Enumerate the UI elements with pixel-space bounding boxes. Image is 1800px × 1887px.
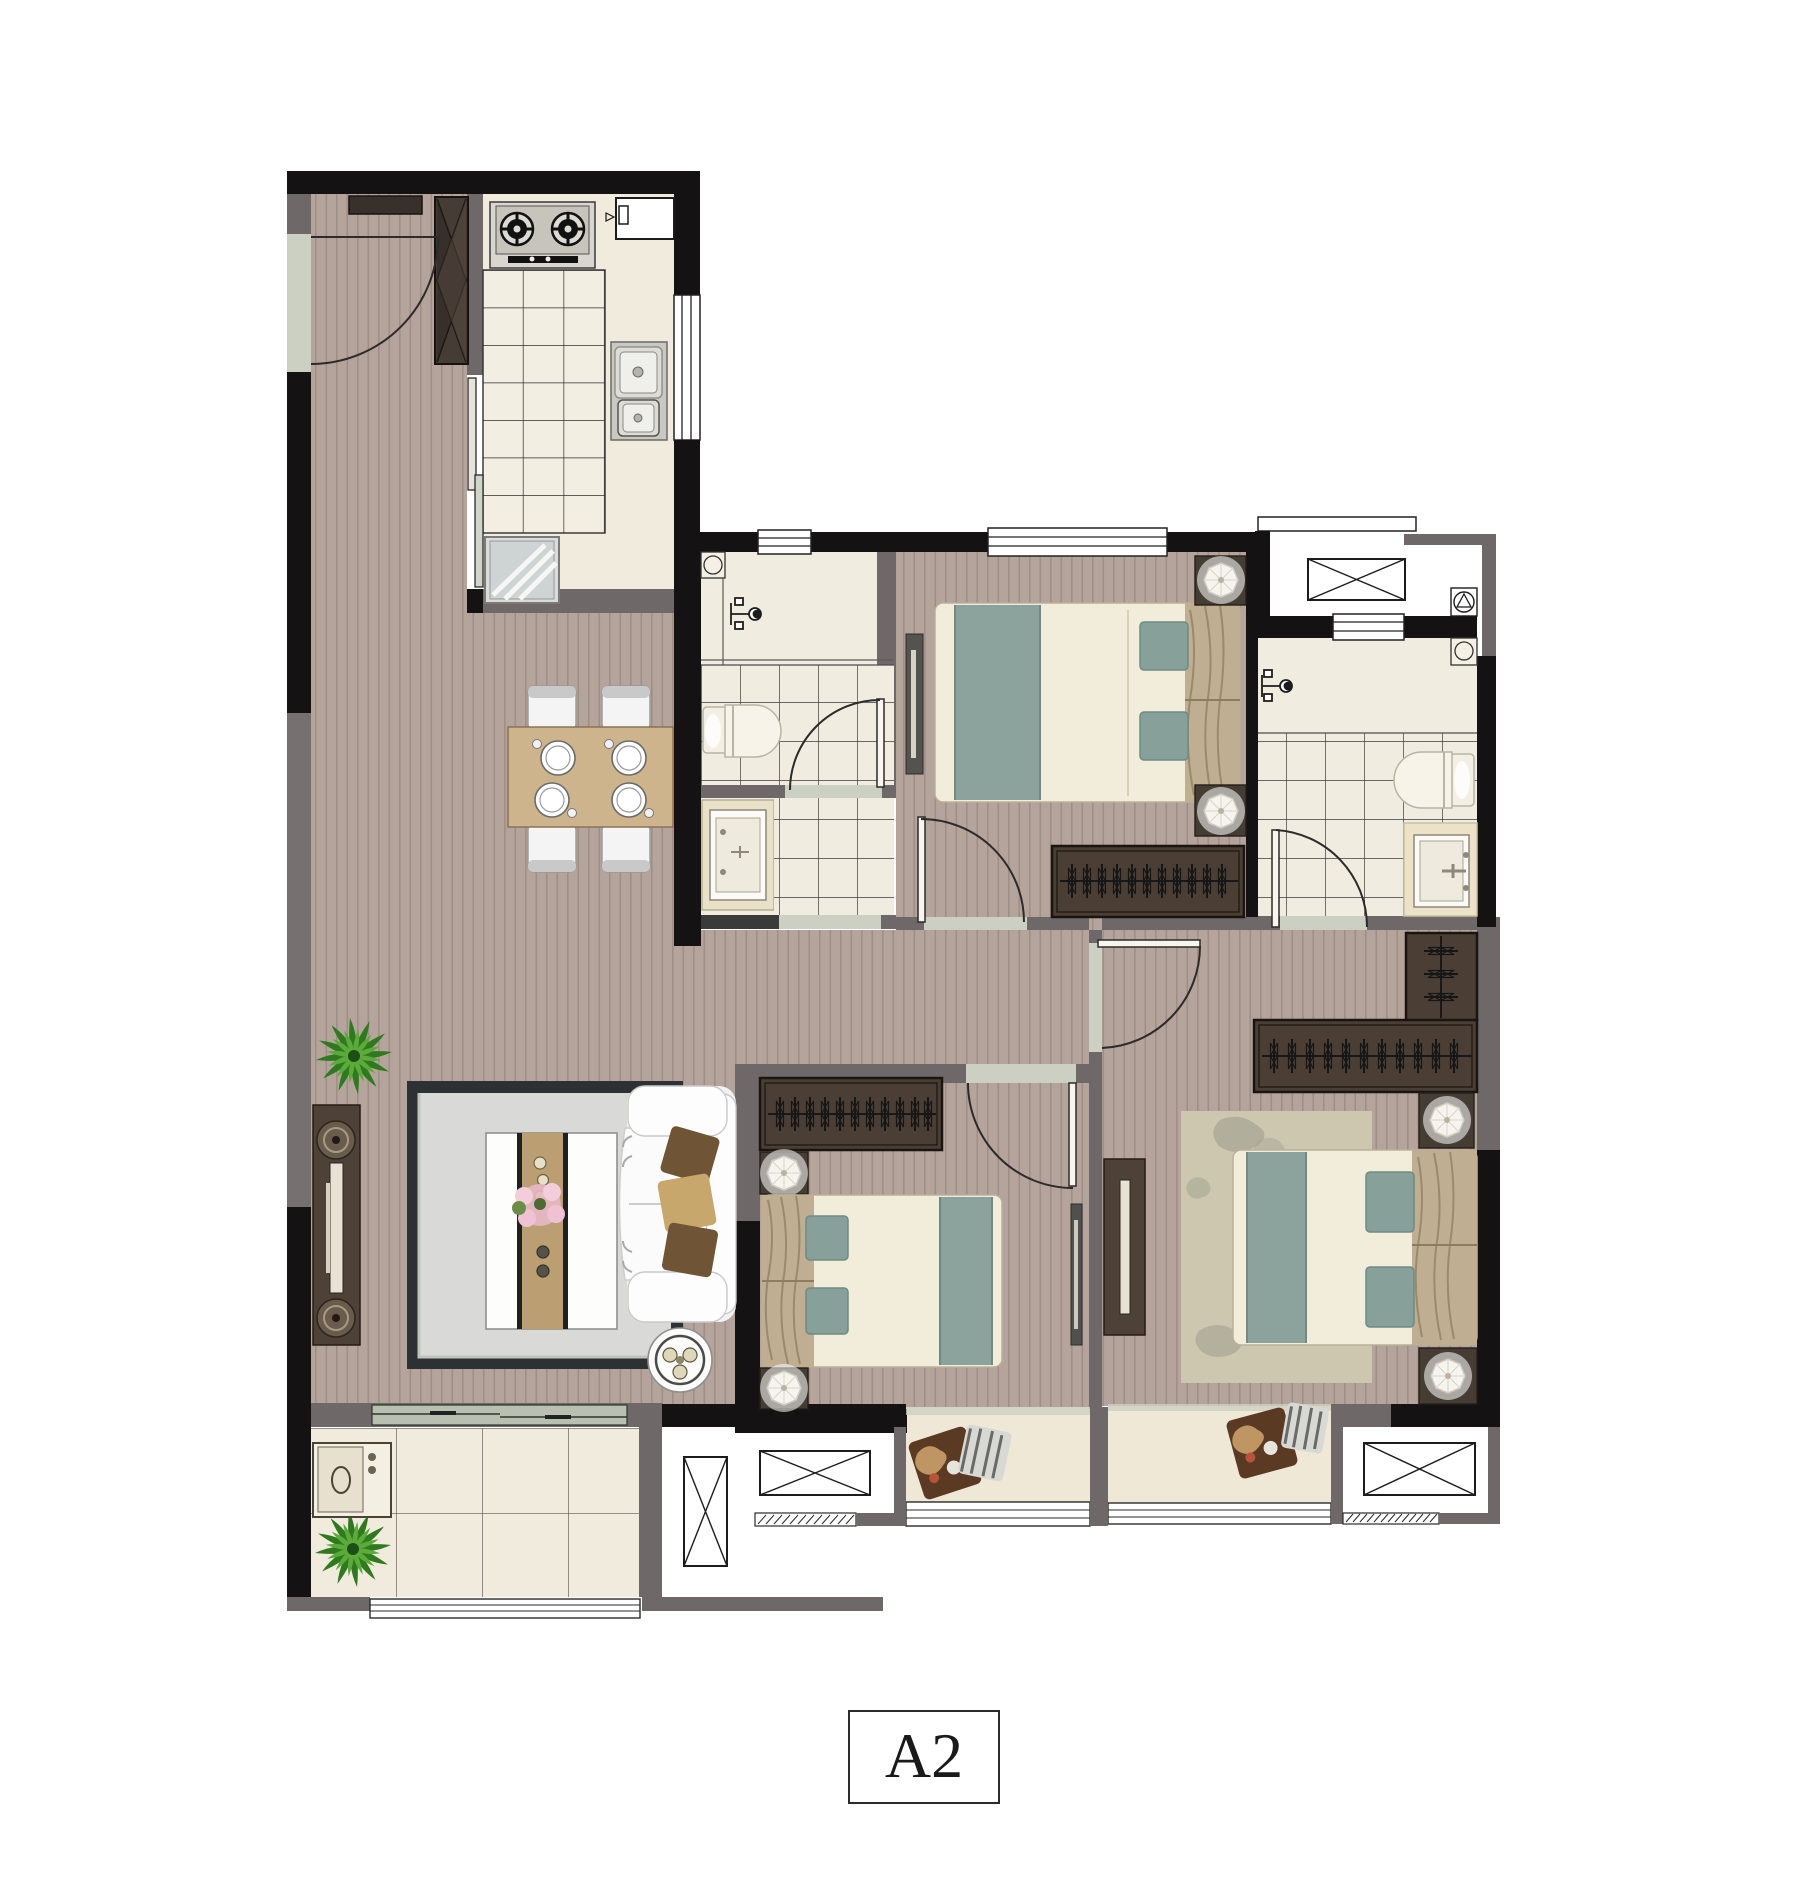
svg-text:A2: A2 (885, 1720, 963, 1791)
